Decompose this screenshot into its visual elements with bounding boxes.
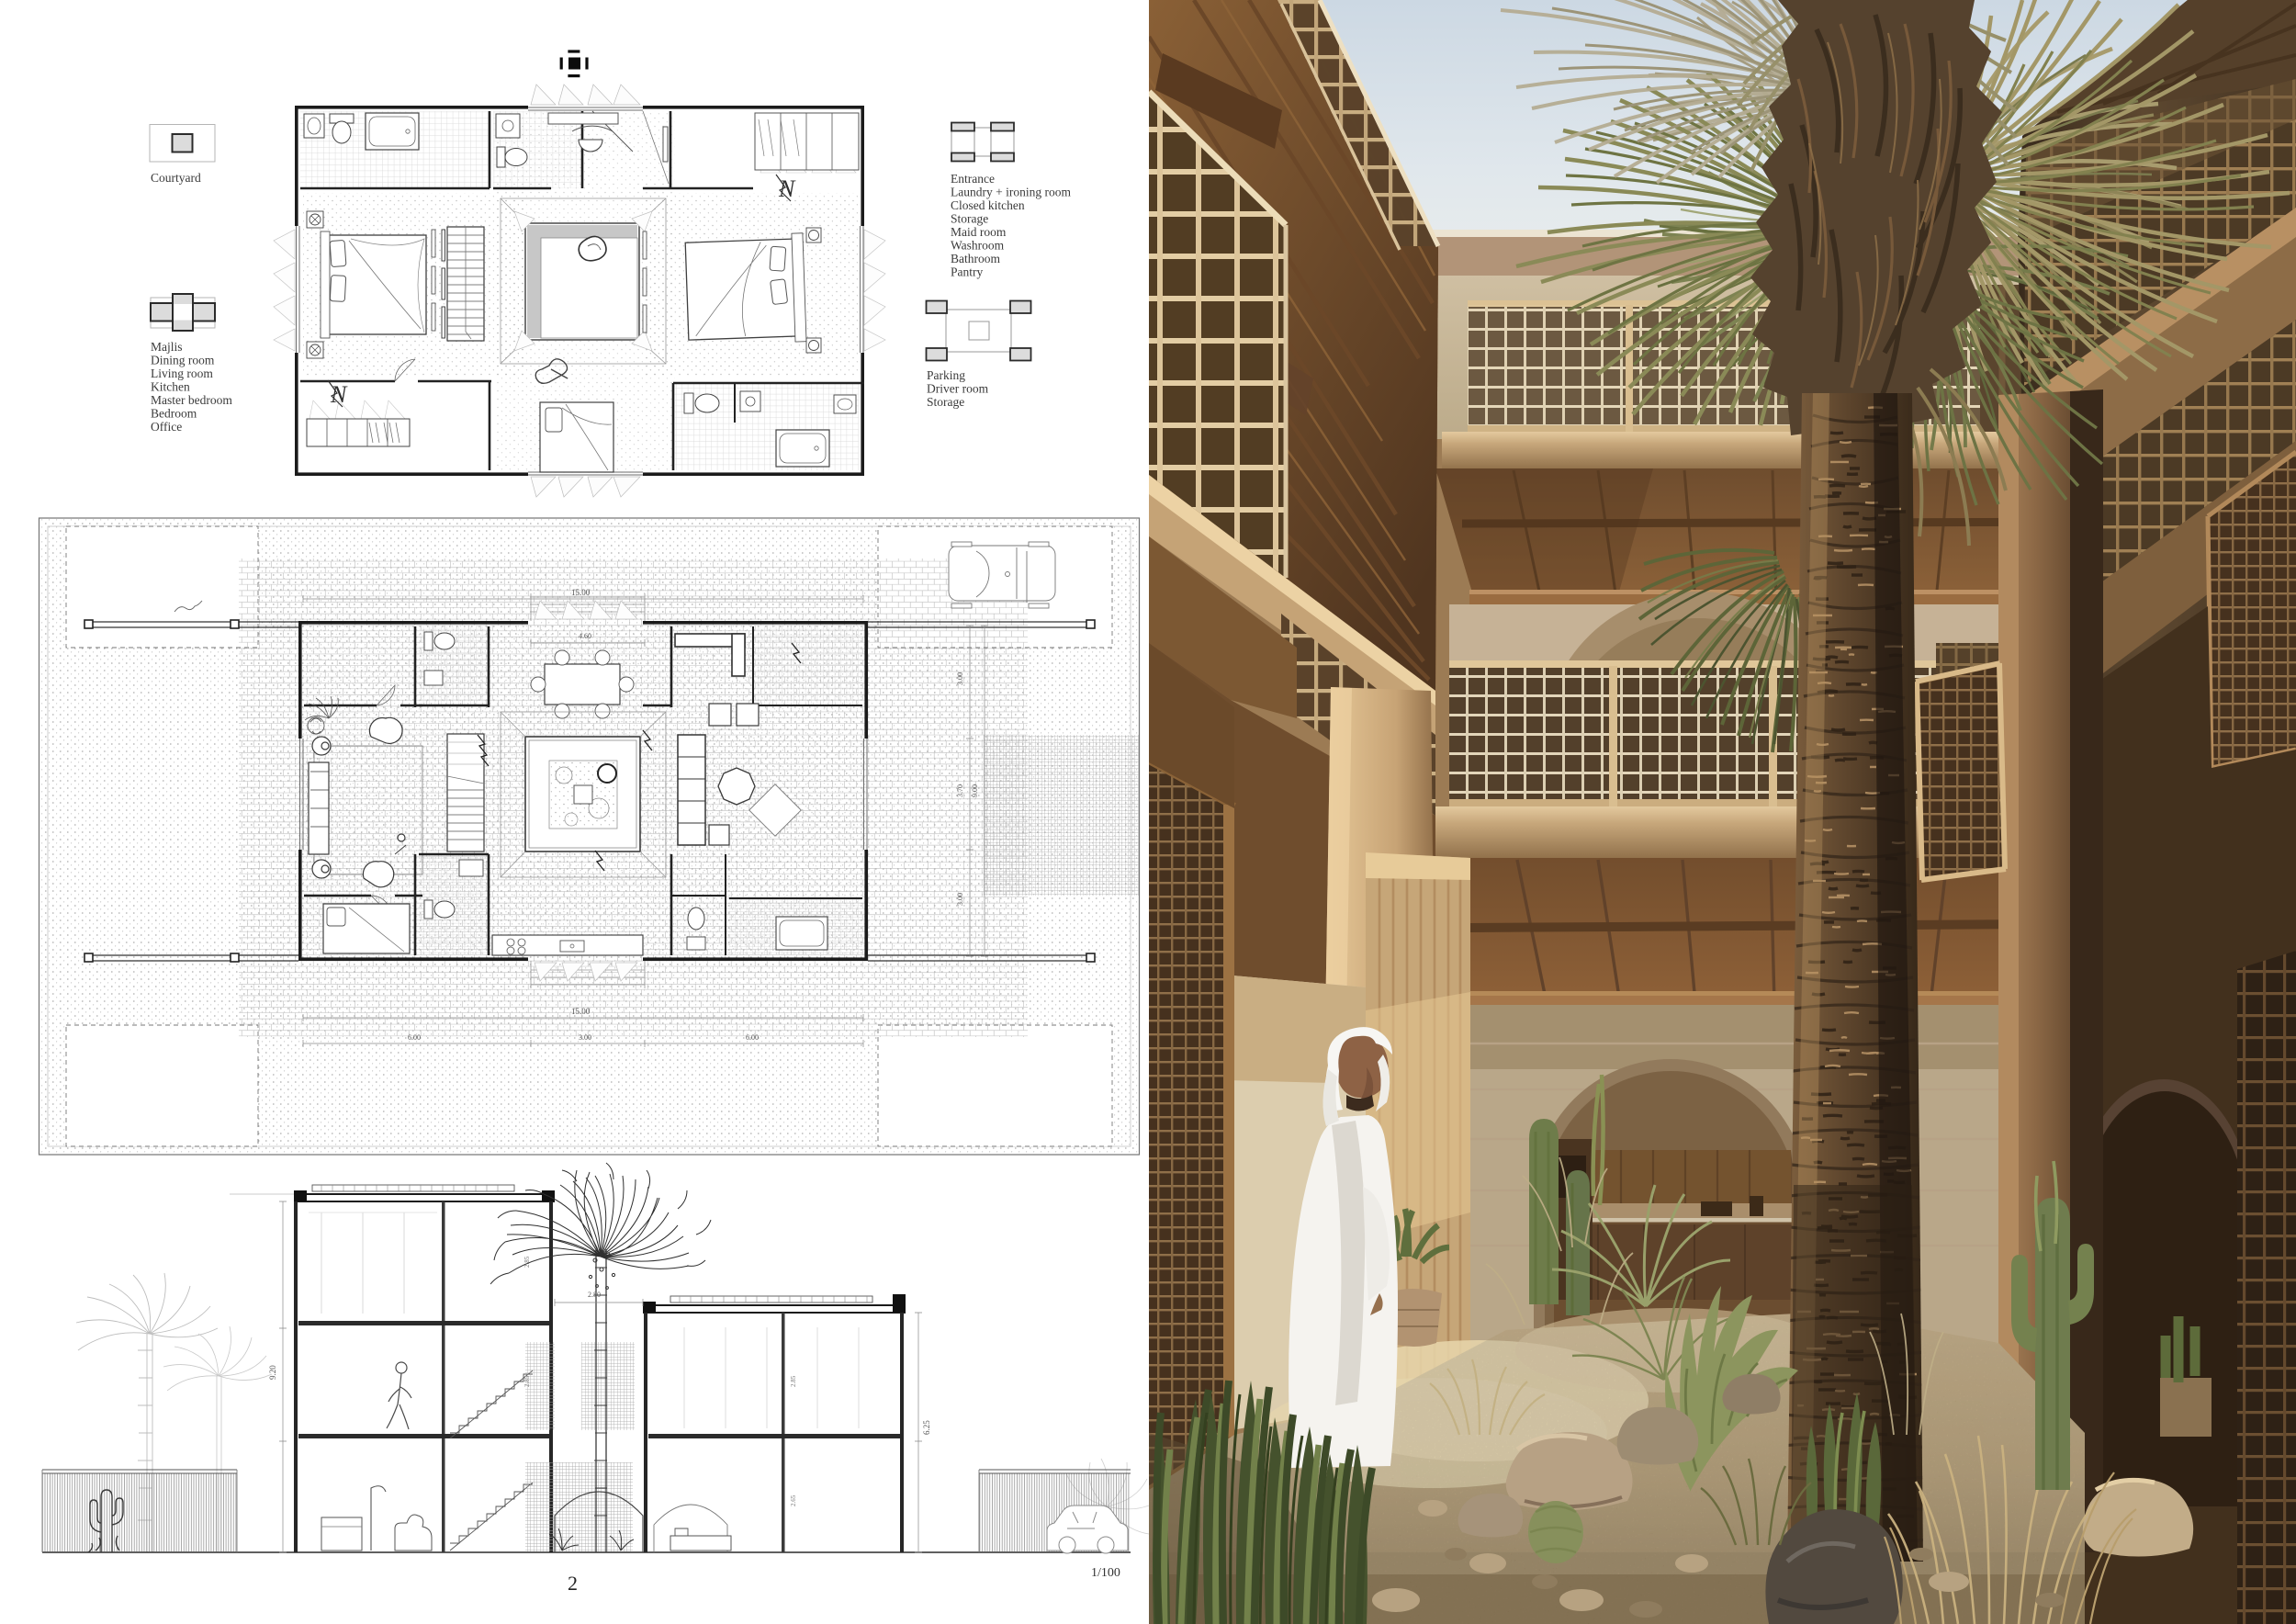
svg-text:2.80: 2.80: [588, 1291, 601, 1299]
svg-text:Majlis: Majlis: [151, 340, 183, 354]
svg-text:Closed kitchen: Closed kitchen: [951, 198, 1025, 212]
svg-text:3.00: 3.00: [956, 672, 964, 685]
svg-text:2.85: 2.85: [790, 1375, 797, 1387]
svg-text:6.00: 6.00: [746, 1033, 759, 1042]
svg-text:2: 2: [568, 1572, 578, 1595]
svg-text:Bedroom: Bedroom: [151, 407, 197, 421]
svg-text:1/100: 1/100: [1091, 1566, 1120, 1580]
svg-text:Maid room: Maid room: [951, 225, 1007, 239]
svg-text:2.85: 2.85: [523, 1375, 531, 1387]
svg-text:2.65: 2.65: [790, 1494, 797, 1506]
svg-text:Entrance: Entrance: [951, 172, 995, 186]
svg-text:Courtyard: Courtyard: [151, 171, 201, 185]
svg-text:3.00: 3.00: [579, 1033, 591, 1042]
svg-text:Dining room: Dining room: [151, 354, 215, 367]
svg-text:15.00: 15.00: [571, 588, 591, 597]
svg-text:Storage: Storage: [927, 395, 964, 409]
svg-text:15.00: 15.00: [571, 1007, 591, 1016]
svg-text:6.25: 6.25: [922, 1420, 931, 1435]
svg-text:9.00: 9.00: [971, 784, 979, 797]
svg-text:Pantry: Pantry: [951, 265, 983, 279]
svg-text:3.00: 3.00: [956, 893, 964, 906]
svg-text:Parking: Parking: [927, 368, 965, 382]
svg-text:9.20: 9.20: [268, 1365, 277, 1380]
svg-text:Storage: Storage: [951, 212, 988, 226]
svg-text:Office: Office: [151, 420, 182, 434]
svg-text:Laundry + ironing room: Laundry + ironing room: [951, 186, 1071, 199]
svg-text:Washroom: Washroom: [951, 239, 1005, 253]
svg-text:Driver room: Driver room: [927, 382, 989, 396]
svg-text:3.70: 3.70: [956, 784, 964, 797]
svg-text:6.00: 6.00: [408, 1033, 421, 1042]
svg-text:Master bedroom: Master bedroom: [151, 393, 232, 407]
svg-text:Bathroom: Bathroom: [951, 252, 1000, 265]
svg-text:4.60: 4.60: [579, 632, 591, 640]
svg-text:Living room: Living room: [151, 367, 213, 380]
svg-text:Kitchen: Kitchen: [151, 380, 190, 394]
svg-text:2.85: 2.85: [523, 1256, 531, 1268]
